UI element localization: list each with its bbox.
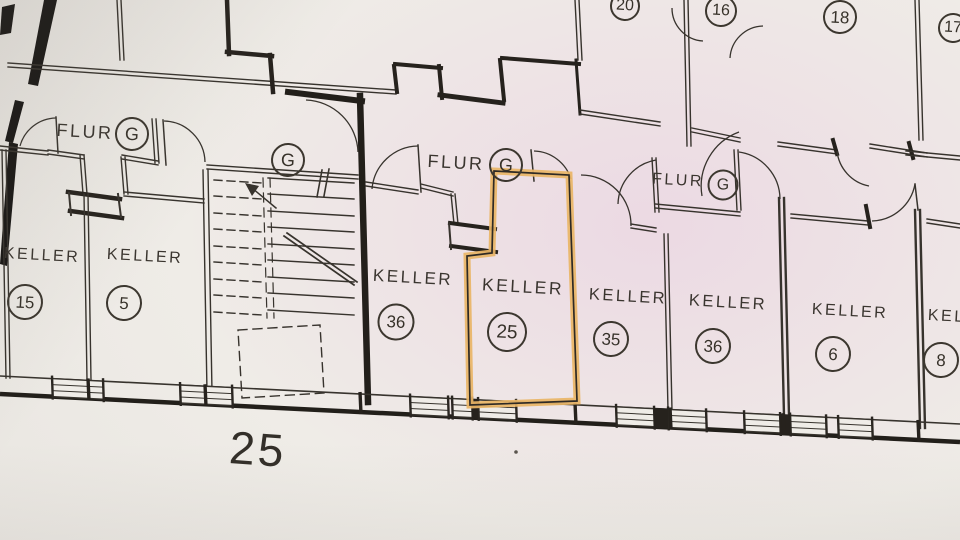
photo-edge-artifacts (0, 0, 57, 266)
flur-label-right: FLUR (652, 171, 705, 192)
stair-steps-solid (268, 178, 354, 315)
right-wing-walls (631, 150, 960, 428)
sheet-number: 25 (228, 420, 289, 478)
flur-label-left: FLUR (56, 120, 114, 144)
door-arc (618, 160, 656, 204)
wall-tick (88, 378, 89, 400)
wall-tick (783, 413, 784, 435)
floor-plan-photo: FLUR G G FLUR G FLUR G 20 16 18 17 KELLE… (0, 0, 960, 540)
wall-tick (205, 384, 206, 406)
wall-tick (918, 420, 919, 442)
floor-plan-drawing (0, 0, 960, 540)
stair-landing-dashed (238, 325, 324, 398)
stair-break-line (284, 233, 357, 285)
door-arc (730, 26, 763, 58)
wall-tick (360, 392, 361, 414)
door-arc (164, 121, 205, 162)
staircase (203, 96, 368, 402)
door-arc (872, 184, 915, 221)
flur-label-middle: FLUR (427, 151, 485, 175)
wall-tick (670, 408, 671, 430)
stair-steps-dashed (214, 180, 262, 315)
door-arc (837, 151, 869, 186)
upper-walls (8, 0, 960, 160)
door-arc (672, 8, 703, 41)
window-symbol (744, 410, 781, 436)
door-arc (739, 152, 780, 199)
wall-pier (654, 408, 668, 429)
room-label-highlighted: KELLER (481, 274, 564, 300)
door-arc (306, 100, 358, 152)
door-arc (372, 146, 418, 189)
door-arcs (20, 8, 915, 226)
door-arc (20, 118, 56, 146)
window-symbol (790, 413, 827, 439)
wall-tick (575, 403, 576, 425)
exterior-wall (0, 376, 960, 442)
window-symbol (838, 415, 873, 441)
print-speck (514, 450, 518, 454)
